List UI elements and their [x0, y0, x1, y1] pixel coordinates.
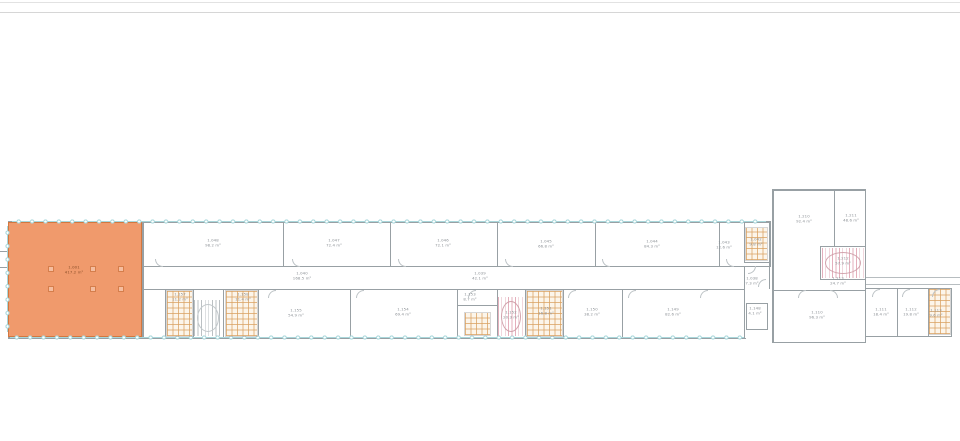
wall [744, 262, 770, 263]
room-label: 1.04772.4 m² [326, 238, 342, 248]
room-label-line: 42.1 m² [472, 276, 488, 281]
room-label-line: 66.8 m² [538, 244, 554, 249]
room-label: 1.15038.2 m² [584, 307, 600, 317]
room-label-line: 38.2 m² [584, 312, 600, 317]
room-label-line: 7.3 m² [745, 281, 758, 286]
wall [283, 222, 284, 266]
door-arc [830, 290, 838, 298]
room-label-line: 48.6 m² [843, 218, 859, 223]
horizontal-rule [0, 12, 960, 13]
corridor-label: 1.0387.3 m² [745, 276, 758, 286]
wall [142, 221, 144, 338]
wall [834, 190, 835, 247]
door-arc [568, 290, 576, 298]
wall [769, 266, 770, 289]
stair-label: 1.21257.9 m² [835, 256, 851, 266]
window-band [12, 218, 766, 225]
room-label-line: 98.2 m² [205, 243, 221, 248]
room-label: 1.11096.3 m² [809, 310, 825, 320]
room-label-line: 11.2 m² [172, 297, 188, 302]
wall [866, 277, 960, 278]
room-label-line: 24.7 m² [830, 281, 846, 286]
wall [746, 303, 747, 329]
room-label-line: 20.3 m² [503, 315, 519, 320]
room-label: 1.14982.6 m² [665, 307, 681, 317]
washroom-fixtures [465, 313, 490, 335]
wall [866, 284, 960, 285]
wall [165, 289, 166, 338]
wall [820, 246, 821, 280]
column-marker [118, 286, 124, 292]
room-label-line: 82.6 m² [665, 312, 681, 317]
window-band [10, 334, 744, 341]
door-arc [700, 290, 708, 298]
wall [390, 222, 391, 266]
wall [595, 222, 596, 266]
room-label-line: 8.7 m² [463, 297, 476, 302]
wall [143, 266, 771, 267]
room-label-line: 92.4 m² [796, 219, 812, 224]
room-label: 1.15554.9 m² [288, 308, 304, 318]
wall [951, 288, 953, 337]
door-arc [872, 289, 880, 297]
room-label: 1.04312.6 m² [716, 240, 732, 250]
room-label-line: 16.8 m² [538, 311, 554, 316]
room-label: 1.1139.6 m² [929, 308, 942, 318]
room-label: 1.04672.1 m² [435, 238, 451, 248]
wall [820, 246, 865, 247]
wall [769, 221, 771, 267]
room-label: 1.04566.8 m² [538, 239, 554, 249]
door-arc [758, 279, 766, 287]
room-label: 1.11118.4 m² [873, 307, 889, 317]
room-label-line: 19.8 m² [903, 312, 919, 317]
wall [865, 189, 867, 281]
room-label-line: 72.4 m² [326, 243, 342, 248]
room-label: 1.0429.8 m² [749, 237, 762, 247]
door-arc [268, 290, 276, 298]
wall [223, 289, 224, 338]
wall [767, 303, 768, 329]
room-label: 1.21092.4 m² [796, 214, 812, 224]
wall [258, 289, 259, 338]
column-marker [48, 286, 54, 292]
room-label-line: 18.4 m² [873, 312, 889, 317]
room-label: 1.11219.8 m² [903, 307, 919, 317]
wall [744, 222, 745, 263]
highlighted-room[interactable] [8, 222, 142, 337]
stair-label: 1.15220.3 m² [503, 310, 519, 320]
floor-plan: 1.001417.2 m²1.04898.2 m²1.04772.4 m²1.0… [0, 0, 960, 441]
wall [497, 222, 498, 266]
wall [143, 289, 745, 290]
highlighted-room-label: 1.001417.2 m² [65, 265, 83, 275]
corridor-label: 1.040168.5 m² [293, 271, 311, 281]
wall [773, 290, 865, 291]
column-marker [90, 266, 96, 272]
wall [457, 305, 497, 306]
room-label: 1.15116.8 m² [538, 306, 554, 316]
wall [457, 289, 458, 338]
door-arc [356, 290, 364, 298]
stairwell [194, 300, 222, 336]
corridor-label: 1.03942.1 m² [472, 271, 488, 281]
room-label: 1.15811.4 m² [235, 292, 251, 302]
window-band [4, 226, 11, 332]
wall [622, 289, 623, 338]
wall [772, 189, 866, 191]
room-label-line: 96.3 m² [809, 315, 825, 320]
corridor-label: 1.21324.7 m² [830, 276, 846, 286]
room-label-line: 417.2 m² [65, 270, 83, 275]
lift-label: 1.1484.1 m² [748, 306, 761, 316]
room-label: 1.15711.2 m² [172, 292, 188, 302]
door-arc [748, 266, 756, 274]
wall [897, 288, 898, 336]
room-label-line: 9.8 m² [749, 242, 762, 247]
wall [866, 336, 952, 338]
door-arc [902, 289, 910, 297]
room-label-line: 57.9 m² [835, 261, 851, 266]
room-label: 1.1538.7 m² [463, 292, 476, 302]
room-label-line: 12.6 m² [716, 245, 732, 250]
door-arc [798, 290, 806, 298]
wall [746, 303, 768, 304]
wall [525, 289, 526, 338]
wall [772, 342, 866, 344]
room-label-line: 69.4 m² [395, 312, 411, 317]
room-label-line: 84.3 m² [644, 244, 660, 249]
room-label-line: 11.4 m² [235, 297, 251, 302]
room-label-line: 168.5 m² [293, 276, 311, 281]
room-label-line: 54.9 m² [288, 313, 304, 318]
stair-oval [197, 304, 219, 332]
room-label-line: 72.1 m² [435, 243, 451, 248]
door-arc [628, 290, 636, 298]
wall [744, 289, 745, 338]
room-label-line: 9.6 m² [929, 313, 942, 318]
column-marker [48, 266, 54, 272]
wall [563, 289, 564, 338]
room-label: 1.04484.3 m² [644, 239, 660, 249]
room-label-line: 4.1 m² [748, 311, 761, 316]
horizontal-rule [0, 2, 960, 3]
column-marker [90, 286, 96, 292]
wall [350, 289, 351, 338]
wall [772, 189, 774, 343]
wall [746, 329, 768, 330]
room-label: 1.21148.6 m² [843, 213, 859, 223]
room-label: 1.15469.4 m² [395, 307, 411, 317]
room-label: 1.04898.2 m² [205, 238, 221, 248]
column-marker [118, 266, 124, 272]
